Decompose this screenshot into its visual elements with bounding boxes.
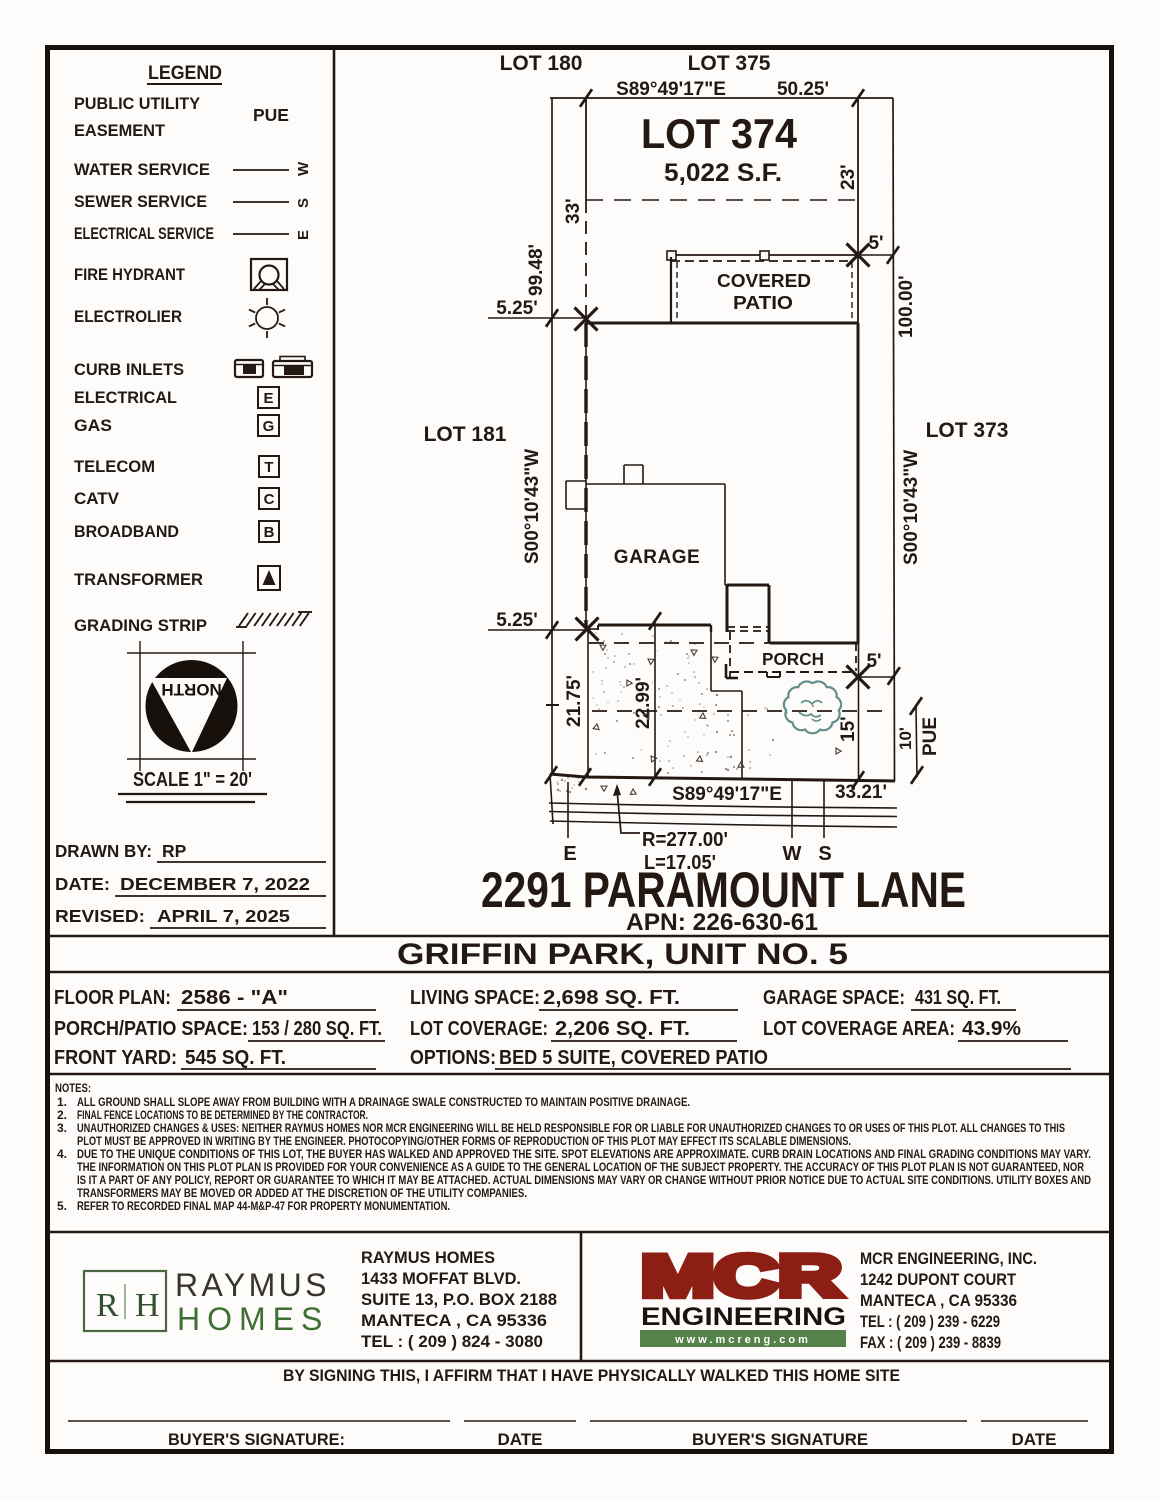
svg-text:MCR ENGINEERING, INC.: MCR ENGINEERING, INC.: [860, 1249, 1037, 1268]
svg-text:PATIO: PATIO: [733, 293, 793, 313]
svg-text:S00°10'43"W: S00°10'43"W: [522, 449, 543, 564]
svg-text:GRIFFIN PARK, UNIT NO. 5: GRIFFIN PARK, UNIT NO. 5: [397, 938, 848, 971]
svg-text:4.: 4.: [57, 1147, 67, 1161]
svg-text:5.25': 5.25': [496, 298, 538, 319]
svg-text:ELECTROLIER: ELECTROLIER: [74, 308, 182, 326]
svg-text:BED 5 SUITE, COVERED PATIO: BED 5 SUITE, COVERED PATIO: [499, 1047, 768, 1069]
svg-text:BROADBAND: BROADBAND: [74, 523, 179, 541]
svg-text:TRANSFORMERS MAY BE MOVED OR: TRANSFORMERS MAY BE MOVED OR ADDED AT TH…: [77, 1186, 527, 1200]
svg-text:APRIL 7, 2025: APRIL 7, 2025: [157, 906, 290, 926]
svg-text:E: E: [263, 390, 273, 407]
svg-text:5': 5': [868, 233, 883, 254]
svg-text:H: H: [135, 1287, 160, 1324]
svg-text:CURB INLETS: CURB INLETS: [74, 361, 184, 379]
svg-text:R=277.00': R=277.00': [642, 829, 728, 851]
svg-text:NORTH: NORTH: [161, 680, 221, 699]
svg-text:1.: 1.: [57, 1095, 67, 1109]
svg-text:2586 - "A": 2586 - "A": [181, 987, 288, 1009]
svg-text:DECEMBER 7, 2022: DECEMBER 7, 2022: [120, 874, 310, 894]
svg-text:10': 10': [896, 727, 915, 750]
svg-text:TRANSFORMER: TRANSFORMER: [74, 571, 203, 589]
svg-text:RAYMUS HOMES: RAYMUS HOMES: [361, 1248, 495, 1267]
svg-text:UNAUTHORIZED CHANGES & USES:: UNAUTHORIZED CHANGES & USES: NEITHER RAY…: [77, 1121, 1065, 1135]
svg-text:DRAWN BY:: DRAWN BY:: [55, 841, 152, 861]
svg-text:C: C: [264, 491, 275, 508]
svg-text:23': 23': [838, 164, 859, 190]
svg-text:LOT COVERAGE:: LOT COVERAGE:: [410, 1018, 548, 1040]
svg-text:DATE:: DATE:: [55, 874, 110, 894]
svg-text:RAYMUS: RAYMUS: [175, 1267, 330, 1303]
svg-text:50.25': 50.25': [777, 79, 829, 100]
svg-text:FIRE HYDRANT: FIRE HYDRANT: [74, 266, 185, 284]
svg-text:IS IT A PART OF ANY POLICY, RE: IS IT A PART OF ANY POLICY, REPORT OR GU…: [77, 1173, 1091, 1187]
svg-text:DUE TO THE UNIQUE CONDITIONS O: DUE TO THE UNIQUE CONDITIONS OF THIS LOT…: [77, 1147, 1091, 1161]
svg-text:ALL GROUND SHALL SLOPE AWAY FR: ALL GROUND SHALL SLOPE AWAY FROM BUILDIN…: [77, 1095, 690, 1109]
svg-text:2,206 SQ. FT.: 2,206 SQ. FT.: [555, 1018, 690, 1040]
svg-text:GARAGE SPACE:: GARAGE SPACE:: [763, 987, 905, 1009]
svg-text:PUBLIC UTILITY: PUBLIC UTILITY: [74, 95, 200, 113]
svg-text:LOT 180: LOT 180: [500, 52, 583, 75]
svg-text:21.75': 21.75': [564, 675, 585, 727]
svg-text:REFER TO RECORDED FINAL MAP 44: REFER TO RECORDED FINAL MAP 44-M&P-47 FO…: [77, 1199, 450, 1213]
svg-text:TEL : ( 209 ) 824 - 3080: TEL : ( 209 ) 824 - 3080: [361, 1332, 543, 1351]
svg-text:5': 5': [866, 651, 881, 672]
svg-text:PORCH/PATIO SPACE:: PORCH/PATIO SPACE:: [54, 1018, 248, 1040]
svg-text:2.: 2.: [57, 1108, 67, 1122]
svg-text:99.48': 99.48': [526, 244, 547, 296]
svg-text:PORCH: PORCH: [762, 649, 824, 669]
svg-text:GRADING STRIP: GRADING STRIP: [74, 617, 207, 635]
svg-text:LOT 373: LOT 373: [926, 419, 1009, 442]
svg-text:SUITE 13, P.O. BOX 2188: SUITE 13, P.O. BOX 2188: [361, 1290, 557, 1309]
svg-text:PUE: PUE: [253, 105, 289, 125]
svg-text:COVERED: COVERED: [717, 271, 811, 291]
svg-text:TELECOM: TELECOM: [74, 458, 155, 476]
svg-text:NOTES:: NOTES:: [55, 1081, 91, 1095]
svg-text:LIVING SPACE:: LIVING SPACE:: [410, 987, 540, 1009]
svg-text:3.: 3.: [57, 1121, 67, 1135]
svg-text:FAX : ( 209 ) 239 - 8839: FAX : ( 209 ) 239 - 8839: [860, 1333, 1001, 1352]
svg-text:1242 DUPONT COURT: 1242 DUPONT COURT: [860, 1270, 1017, 1289]
svg-text:ELECTRICAL: ELECTRICAL: [74, 389, 177, 407]
svg-text:153 / 280 SQ. FT.: 153 / 280 SQ. FT.: [252, 1018, 382, 1040]
svg-text:GARAGE: GARAGE: [614, 547, 700, 568]
svg-text:33.21': 33.21': [835, 782, 887, 803]
svg-text:G: G: [263, 418, 275, 435]
svg-text:REVISED:: REVISED:: [55, 906, 145, 926]
svg-text:22.99': 22.99': [633, 677, 654, 729]
svg-text:SEWER SERVICE: SEWER SERVICE: [74, 193, 207, 211]
svg-text:FRONT YARD:: FRONT YARD:: [54, 1047, 177, 1069]
svg-text:W: W: [295, 161, 312, 176]
svg-text:S: S: [295, 198, 312, 208]
svg-text:BY SIGNING THIS, I AFFIRM THAT: BY SIGNING THIS, I AFFIRM THAT I HAVE PH…: [283, 1366, 900, 1385]
svg-text:T: T: [264, 459, 273, 476]
svg-text:5,022 S.F.: 5,022 S.F.: [664, 159, 782, 187]
svg-text:DATE: DATE: [1011, 1430, 1056, 1449]
svg-text:HOMES: HOMES: [177, 1301, 329, 1337]
svg-text:TEL : ( 209 ) 239 - 6229: TEL : ( 209 ) 239 - 6229: [860, 1312, 1000, 1331]
svg-text:FLOOR PLAN:: FLOOR PLAN:: [54, 987, 171, 1009]
svg-text:545 SQ. FT.: 545 SQ. FT.: [185, 1047, 286, 1069]
svg-text:www.mcreng.com: www.mcreng.com: [674, 1334, 811, 1346]
svg-text:THE INFORMATION ON THIS PLOT P: THE INFORMATION ON THIS PLOT PLAN IS PRO…: [77, 1160, 1084, 1174]
svg-text:LOT 181: LOT 181: [424, 423, 507, 446]
svg-text:15': 15': [838, 716, 859, 742]
svg-text:LOT COVERAGE AREA:: LOT COVERAGE AREA:: [763, 1018, 955, 1040]
svg-text:2,698 SQ. FT.: 2,698 SQ. FT.: [543, 987, 680, 1009]
svg-text:PLOT MUST BE APPROVED IN WRITI: PLOT MUST BE APPROVED IN WRITING BY THE …: [77, 1134, 851, 1148]
svg-text:MANTECA , CA 95336: MANTECA , CA 95336: [361, 1311, 547, 1330]
svg-text:43.9%: 43.9%: [962, 1018, 1021, 1040]
svg-text:BUYER'S SIGNATURE: BUYER'S SIGNATURE: [692, 1430, 868, 1449]
svg-text:MANTECA , CA 95336: MANTECA , CA 95336: [860, 1291, 1017, 1310]
svg-text:S89°49'17"E: S89°49'17"E: [616, 79, 726, 100]
svg-text:ELECTRICAL SERVICE: ELECTRICAL SERVICE: [74, 225, 214, 243]
svg-text:BUYER'S SIGNATURE:: BUYER'S SIGNATURE:: [168, 1430, 345, 1449]
svg-text:EASEMENT: EASEMENT: [74, 122, 165, 140]
svg-text:S89°49'17"E: S89°49'17"E: [672, 784, 782, 805]
svg-text:CATV: CATV: [74, 490, 119, 508]
svg-text:PUE: PUE: [920, 717, 941, 756]
svg-text:S00°10'43"W: S00°10'43"W: [901, 450, 922, 565]
svg-text:5.25': 5.25': [496, 610, 538, 631]
svg-text:B: B: [264, 524, 275, 541]
svg-text:1433 MOFFAT BLVD.: 1433 MOFFAT BLVD.: [361, 1269, 521, 1288]
svg-text:RP: RP: [162, 841, 187, 861]
svg-text:5.: 5.: [57, 1199, 67, 1213]
svg-text:LEGEND: LEGEND: [148, 63, 222, 84]
svg-text:OPTIONS:: OPTIONS:: [410, 1047, 496, 1069]
svg-text:APN: 226-630-61: APN: 226-630-61: [626, 909, 818, 936]
svg-text:100.00': 100.00': [896, 275, 917, 338]
svg-text:ENGINEERING: ENGINEERING: [641, 1303, 846, 1331]
svg-text:431 SQ. FT.: 431 SQ. FT.: [915, 987, 1001, 1009]
svg-text:DATE: DATE: [497, 1430, 542, 1449]
svg-text:FINAL FENCE LOCATIONS TO BE DE: FINAL FENCE LOCATIONS TO BE DETERMINED B…: [77, 1108, 368, 1122]
svg-text:MCR: MCR: [641, 1243, 842, 1308]
svg-text:LOT 375: LOT 375: [688, 52, 771, 75]
svg-text:E: E: [295, 230, 312, 240]
svg-text:SCALE 1" = 20': SCALE 1" = 20': [133, 769, 252, 791]
svg-text:R: R: [96, 1287, 119, 1324]
svg-text:33': 33': [563, 198, 584, 224]
svg-text:LOT 374: LOT 374: [641, 110, 798, 157]
svg-text:WATER SERVICE: WATER SERVICE: [74, 161, 210, 179]
svg-text:GAS: GAS: [74, 417, 112, 435]
